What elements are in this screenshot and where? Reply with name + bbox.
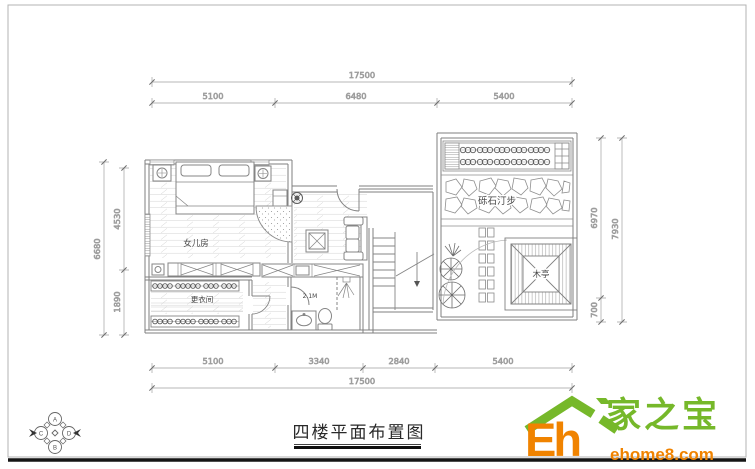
index-marker: A B C D (29, 413, 81, 454)
logo-site-text: ehome8.com (610, 446, 714, 463)
dim-right-seg2: 700 (589, 302, 599, 318)
staircase (373, 232, 434, 310)
label-pavilion: 木亭 (532, 269, 549, 280)
marker-letter-c: C (39, 432, 44, 438)
drawing-page: 17500 5100 6480 5400 5100 3340 2840 5400… (0, 0, 755, 469)
nightstand-right (255, 166, 271, 181)
nightstand-left (153, 165, 171, 181)
title-underline-thin (294, 444, 421, 445)
sofa (344, 217, 367, 260)
marker-letter-b: B (53, 446, 57, 452)
logo-brand-text: 家之宝 (606, 398, 720, 433)
planting-bed (443, 141, 571, 171)
label-daughter-room: 女儿房 (183, 238, 209, 249)
terrace (439, 141, 577, 310)
marker-arrow-left (29, 429, 37, 437)
corridor-floor (253, 282, 286, 328)
dim-right-seg1: 6970 (589, 207, 599, 228)
stair-arrow-head (414, 281, 420, 287)
dresser-row (152, 263, 260, 276)
dim-chain-top: 17500 5100 6480 5400 (149, 70, 574, 108)
shower-head (338, 277, 354, 298)
label-gravel-path: 砾石汀步 (478, 195, 516, 207)
stepping-stones (479, 228, 494, 302)
drawing-title: 四楼平面布置图 (278, 418, 440, 443)
bed (176, 162, 254, 214)
grass-sprig (445, 243, 461, 256)
dim-chain-right: 6970 700 7930 (589, 135, 627, 324)
stair-break-line (396, 254, 434, 276)
dim-bottom-seg1: 5100 (202, 356, 223, 366)
title-underline-thick (294, 446, 421, 449)
label-dressing-room: 更衣间 (191, 294, 214, 304)
pillow (219, 165, 249, 176)
page-frame (8, 5, 746, 460)
dim-bottom-seg3: 2840 (388, 356, 409, 366)
dim-left-seg1: 4530 (112, 208, 122, 229)
dim-left-seg2: 1890 (112, 291, 122, 312)
dim-bottom-total: 17500 (349, 376, 375, 386)
dim-top-total: 17500 (349, 70, 375, 80)
dim-bottom-seg4: 5400 (492, 356, 513, 366)
dim-left-total: 6680 (92, 238, 102, 259)
dim-top-seg3: 5400 (493, 91, 514, 101)
stair-steps (373, 238, 395, 286)
wardrobe-row (262, 264, 363, 277)
toilet (318, 309, 332, 331)
side-wall-window (145, 214, 150, 256)
dim-chain-bottom: 5100 3340 2840 5400 17500 (149, 356, 574, 393)
pillow (181, 165, 211, 176)
dim-chain-left: 6680 4530 1890 (92, 159, 129, 337)
trees (439, 243, 465, 308)
dim-top-seg1: 5100 (202, 91, 223, 101)
dim-right-total: 7930 (610, 218, 620, 239)
marker-arrow-right (73, 429, 81, 437)
marker-letter-a: A (53, 418, 57, 424)
sink (292, 311, 316, 330)
dim-bottom-seg2: 3340 (308, 356, 329, 366)
bedroom-window-left (150, 160, 174, 165)
coffee-table (306, 230, 328, 252)
marker-letter-d: D (67, 432, 72, 438)
label-bath-ceiling: 2.1M (303, 293, 318, 300)
dim-top-seg2: 6480 (345, 91, 366, 101)
logo-eh-text: Eh (525, 416, 579, 463)
